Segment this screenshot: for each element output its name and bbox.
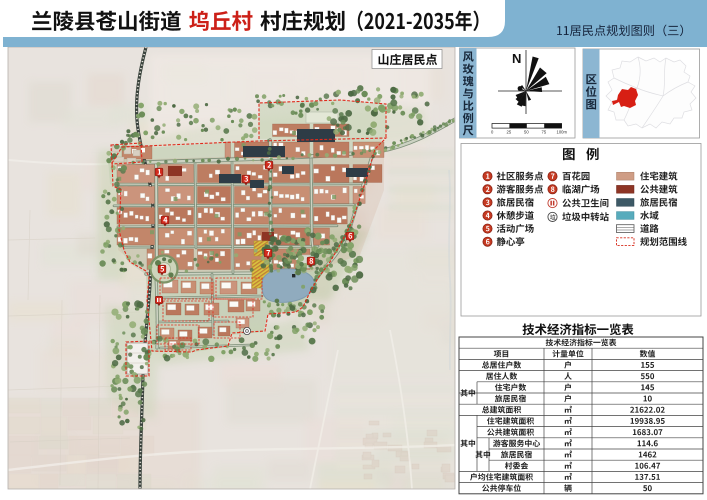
svg-text:25: 25	[507, 130, 512, 135]
svg-text:75: 75	[542, 130, 547, 135]
svg-text:N: N	[512, 51, 521, 66]
svg-text:50: 50	[524, 130, 529, 135]
svg-text:100m: 100m	[557, 130, 568, 135]
